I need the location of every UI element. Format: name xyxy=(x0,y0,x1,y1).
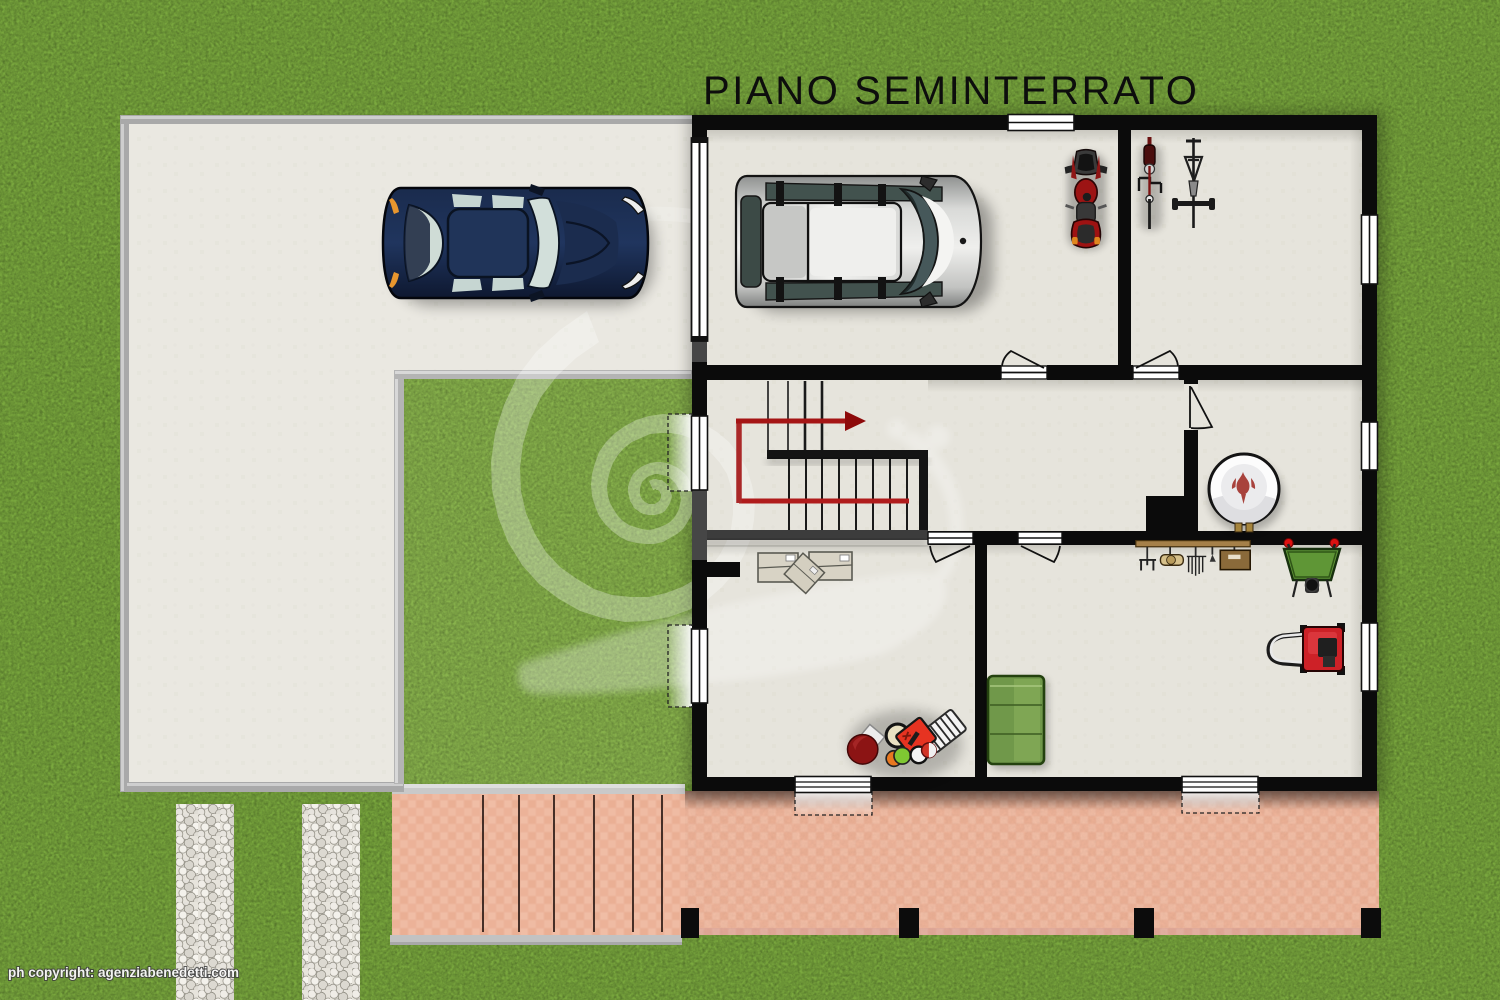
svg-text:ph copyright: agenziabenedetti: ph copyright: agenziabenedetti.com xyxy=(8,965,239,980)
svg-text:PIANO SEMINTERRATO: PIANO SEMINTERRATO xyxy=(703,69,1200,113)
